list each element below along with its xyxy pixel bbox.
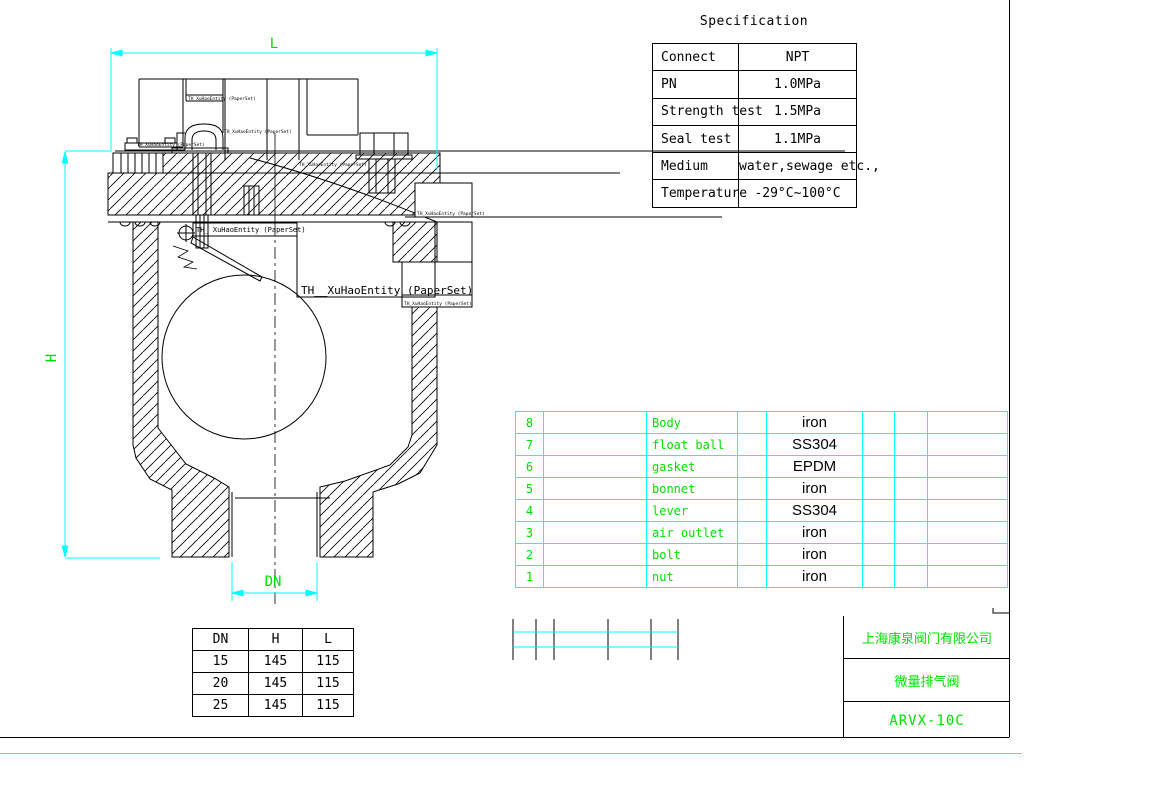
part-number: 2: [516, 544, 544, 566]
part-number: 4: [516, 500, 544, 522]
spec-table-body: ConnectNPTPN1.0MPaStrength test1.5MPaSea…: [653, 44, 857, 208]
cell: [738, 412, 767, 434]
revision-strip: [513, 619, 678, 660]
part-material: EPDM: [767, 456, 863, 478]
spec-label: Strength test: [653, 98, 739, 125]
spec-value: 1.1MPa: [739, 125, 857, 152]
part-material: iron: [767, 412, 863, 434]
part-name: nut: [647, 566, 738, 588]
cell: [738, 566, 767, 588]
part-name: lever: [647, 500, 738, 522]
part-number: 8: [516, 412, 544, 434]
cell: [928, 522, 1008, 544]
cell: [738, 434, 767, 456]
part-name: bolt: [647, 544, 738, 566]
cell: [544, 566, 647, 588]
size-table-body: DNHL151451152014511525145115: [193, 629, 354, 717]
float-ball: [162, 275, 326, 439]
spec-table: ConnectNPTPN1.0MPaStrength test1.5MPaSea…: [652, 43, 857, 208]
cell: [895, 412, 928, 434]
cell: [928, 456, 1008, 478]
parts-table-body: 8Bodyiron7float ballSS3046gasketEPDM5bon…: [516, 412, 1008, 588]
cell: [544, 456, 647, 478]
part-number: 5: [516, 478, 544, 500]
size-value: 15: [193, 651, 249, 673]
cell: [863, 522, 895, 544]
cell: [895, 434, 928, 456]
part-material: SS304: [767, 500, 863, 522]
cell: [895, 544, 928, 566]
balloon-label-tiny: TH_XuHaoEntity (PaperSet): [224, 129, 292, 135]
part-name: float ball: [647, 434, 738, 456]
part-material: iron: [767, 566, 863, 588]
valve-seat: [232, 492, 330, 557]
body-wall-right: [320, 307, 437, 557]
cell: [895, 500, 928, 522]
spec-value: -29°C~100°C: [739, 180, 857, 207]
part-name: Body: [647, 412, 738, 434]
cad-drawing-page: L H DN TH__XuHaoEntity (PaperSet) TH_ Xu…: [0, 0, 1160, 786]
size-value: 145: [249, 673, 303, 695]
cell: [928, 478, 1008, 500]
cell: [738, 500, 767, 522]
cell: [863, 456, 895, 478]
size-header: L: [303, 629, 354, 651]
spec-value: 1.0MPa: [739, 71, 857, 98]
cell: [544, 522, 647, 544]
bonnet-lower-slab: [108, 173, 440, 215]
cell: [863, 434, 895, 456]
size-table: DNHL151451152014511525145115: [192, 628, 354, 717]
spec-label: Medium: [653, 153, 739, 180]
part-name: bonnet: [647, 478, 738, 500]
dim-length-L: [111, 48, 437, 170]
cell: [738, 478, 767, 500]
lever: [191, 237, 262, 281]
part-number: 3: [516, 522, 544, 544]
part-number: 7: [516, 434, 544, 456]
spec-label: Temperature: [653, 180, 739, 207]
size-value: 115: [303, 651, 354, 673]
cell: [863, 500, 895, 522]
dim-label-DN: DN: [265, 574, 282, 590]
size-header: H: [249, 629, 303, 651]
company-name: 上海康泉阀门有限公司: [844, 616, 1010, 658]
balloon-label-tiny: TH_XuHaoEntity (PaperSet): [404, 301, 472, 307]
part-name: air outlet: [647, 522, 738, 544]
cell: [863, 412, 895, 434]
dim-label-H: H: [44, 354, 60, 362]
cell: [895, 478, 928, 500]
spec-label: Connect: [653, 44, 739, 71]
cell: [544, 500, 647, 522]
cell: [544, 412, 647, 434]
dim-label-L: L: [270, 36, 278, 52]
part-material: iron: [767, 522, 863, 544]
spec-value: water,sewage etc.,: [739, 153, 857, 180]
product-name: 微量排气阀: [844, 658, 1010, 701]
cell: [928, 412, 1008, 434]
balloon-label-tiny: TH_XuHaoEntity (PaperSet): [299, 162, 367, 168]
title-block: 上海康泉阀门有限公司 微量排气阀 ARVX-10C: [843, 616, 1010, 737]
balloon-label-tiny: TH_XuHaoEntity (PaperSet): [137, 142, 205, 148]
spec-label: PN: [653, 71, 739, 98]
size-value: 115: [303, 695, 354, 717]
balloon-label-small: TH_ XuHaoEntity (PaperSet): [196, 226, 306, 234]
cell: [738, 456, 767, 478]
model-number: ARVX-10C: [844, 701, 1010, 739]
cell: [895, 456, 928, 478]
size-value: 115: [303, 673, 354, 695]
spec-label: Seal test: [653, 125, 739, 152]
cell: [895, 522, 928, 544]
spec-table-title: Specification: [652, 14, 856, 29]
size-header: DN: [193, 629, 249, 651]
cell: [544, 544, 647, 566]
size-value: 25: [193, 695, 249, 717]
cell: [544, 434, 647, 456]
cell: [928, 434, 1008, 456]
part-material: SS304: [767, 434, 863, 456]
balloon-label-tiny: TH_XuHaoEntity (PaperSet): [417, 211, 485, 217]
cell: [928, 500, 1008, 522]
cell: [928, 544, 1008, 566]
cell: [738, 544, 767, 566]
cell: [895, 566, 928, 588]
cell: [863, 478, 895, 500]
part-name: gasket: [647, 456, 738, 478]
part-material: iron: [767, 478, 863, 500]
cell: [738, 522, 767, 544]
balloon-label-tiny: TH_XuHaoEntity (PaperSet): [188, 96, 256, 102]
balloon-label-large: TH__XuHaoEntity (PaperSet): [301, 284, 473, 297]
size-value: 145: [249, 651, 303, 673]
part-number: 1: [516, 566, 544, 588]
spec-value: NPT: [739, 44, 857, 71]
size-value: 20: [193, 673, 249, 695]
size-value: 145: [249, 695, 303, 717]
body-wall-left: [133, 222, 229, 557]
cell: [863, 566, 895, 588]
parts-table: 8Bodyiron7float ballSS3046gasketEPDM5bon…: [515, 411, 1008, 588]
part-number: 6: [516, 456, 544, 478]
cell: [863, 544, 895, 566]
part-material: iron: [767, 544, 863, 566]
cell: [544, 478, 647, 500]
cell: [928, 566, 1008, 588]
